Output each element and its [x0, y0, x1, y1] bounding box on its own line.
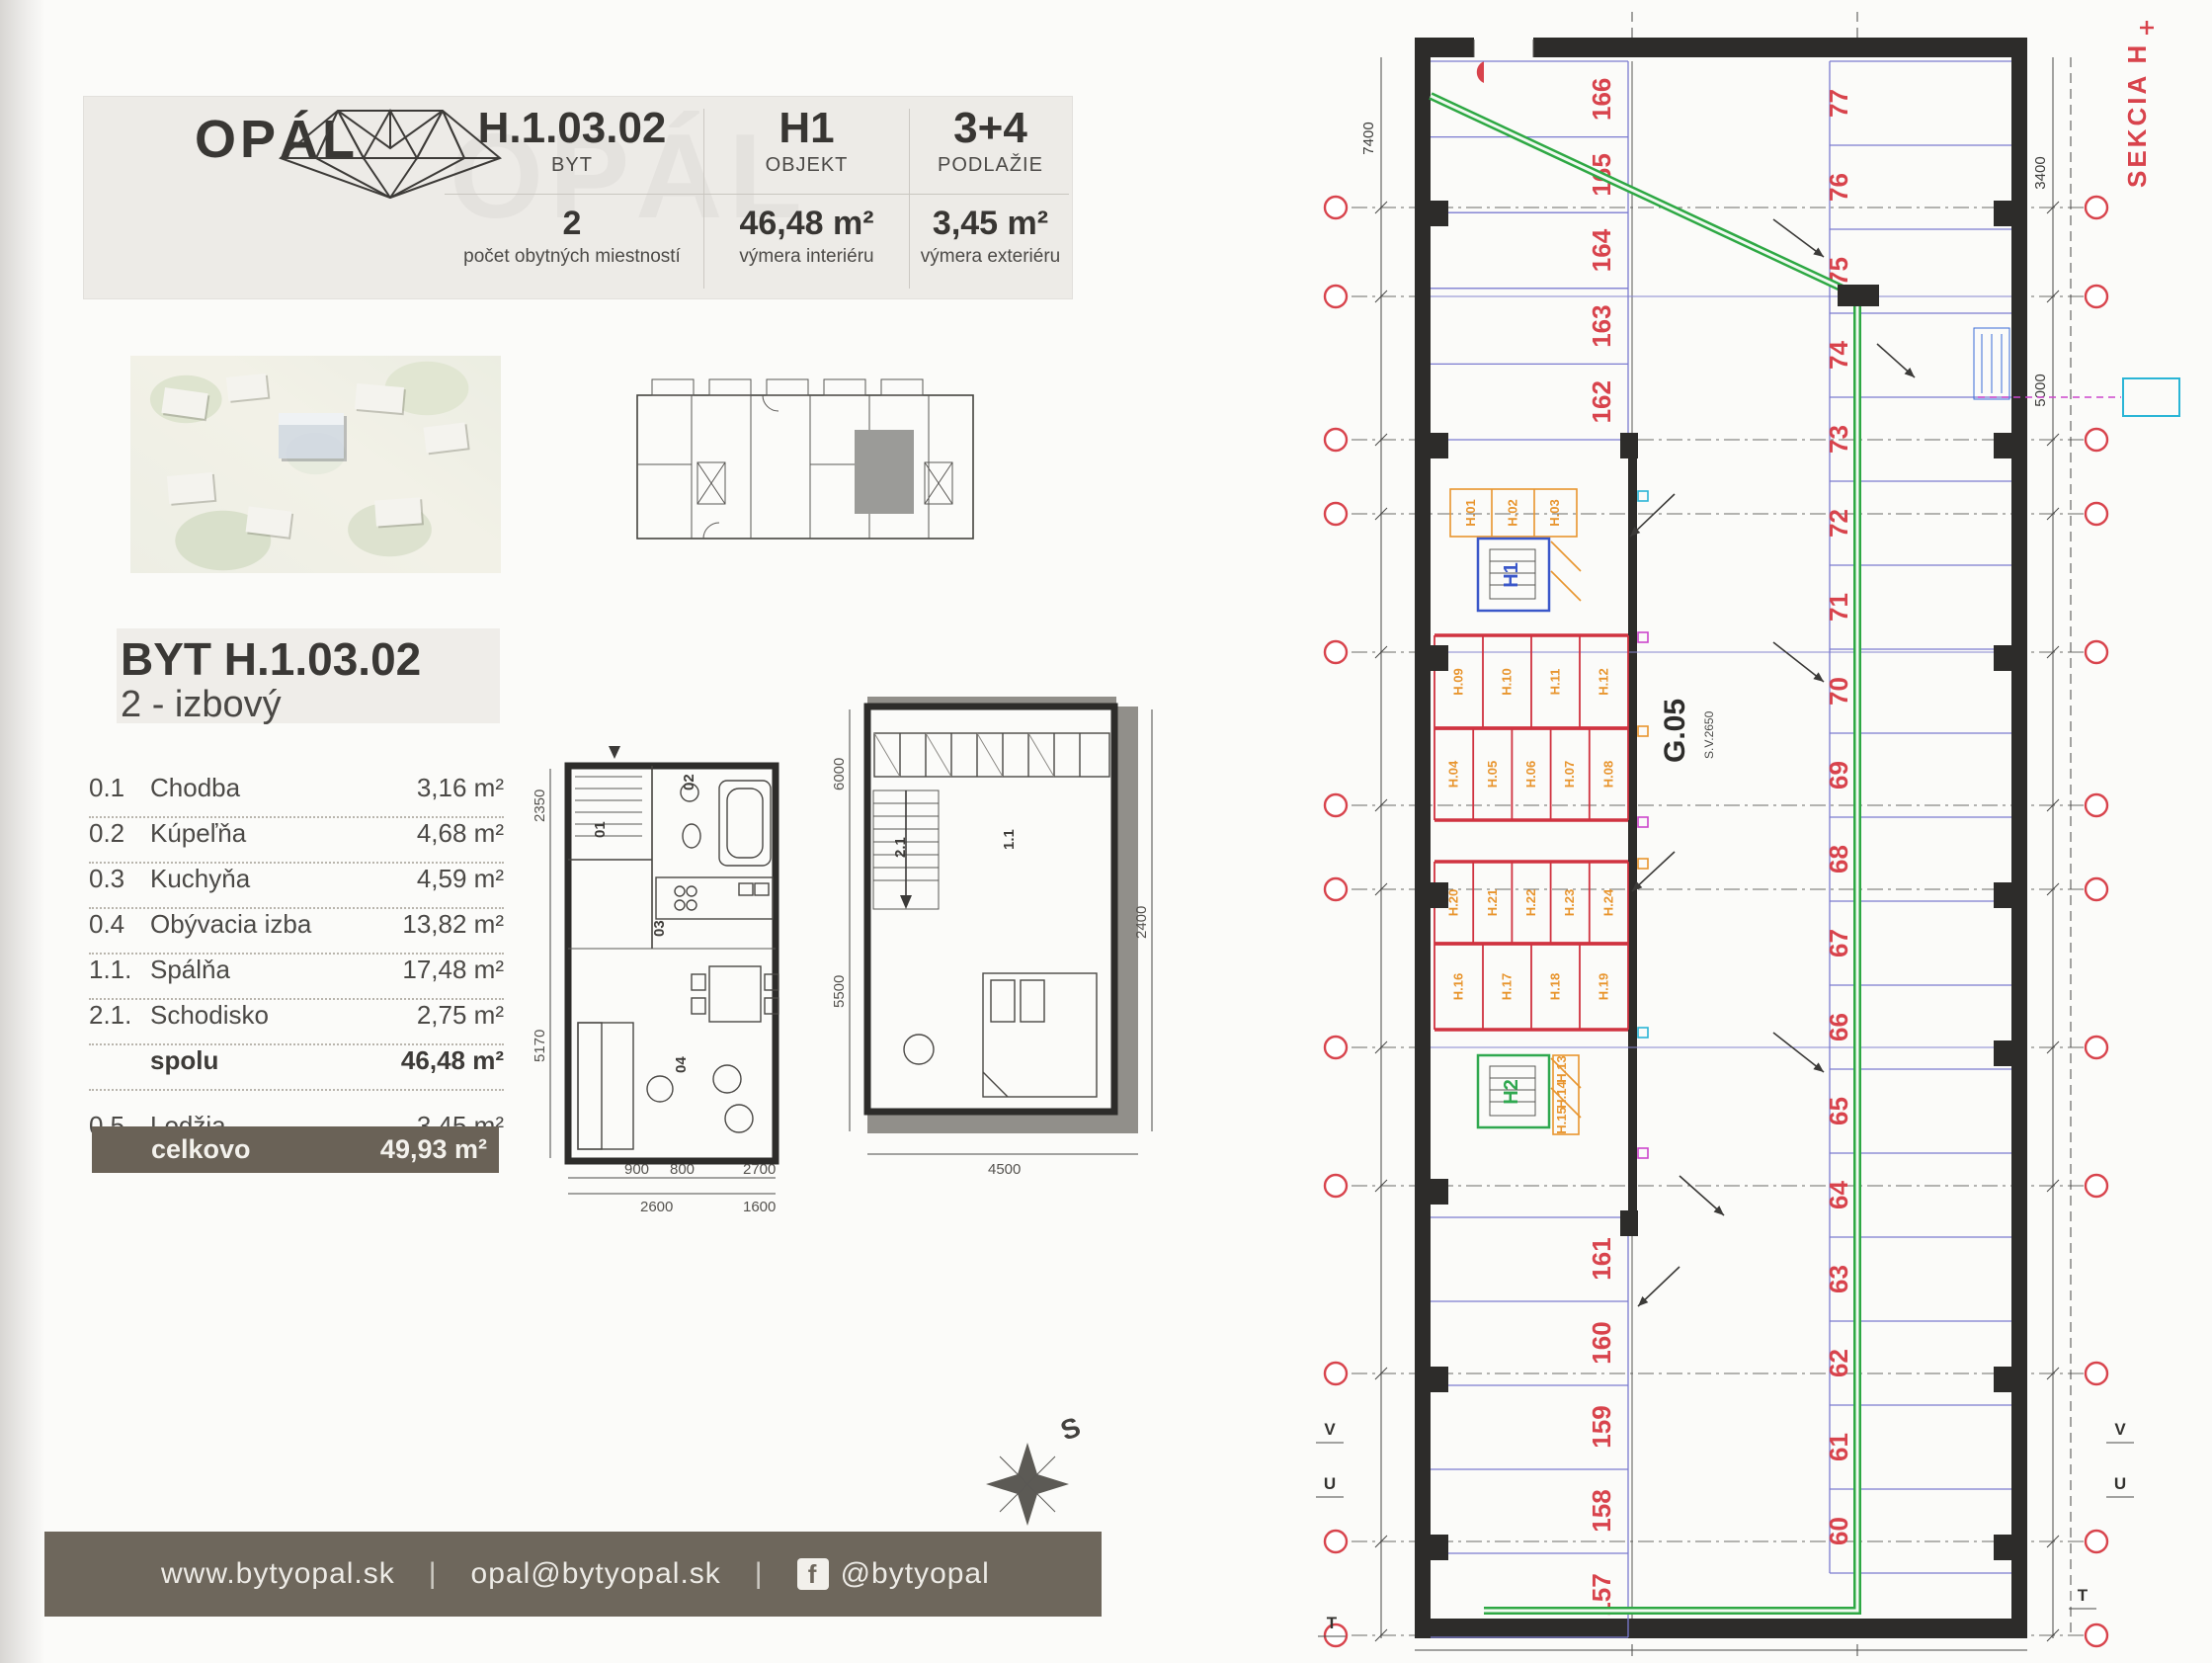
parking-number: 61: [1824, 1433, 1853, 1461]
pillar: [1994, 645, 2011, 671]
section-cut-letter: U: [2114, 1474, 2126, 1493]
pillar: [1431, 645, 1448, 671]
grid-marker-icon: [2086, 794, 2107, 816]
storage-label: H.07: [1562, 761, 1577, 788]
parking-number: 158: [1587, 1489, 1616, 1532]
dimension-chains: 7400 3400 5000: [1360, 57, 2071, 1656]
pillar: [1994, 1535, 2011, 1560]
core-h1: H1: [1478, 539, 1581, 611]
grid-marker-icon: [1325, 1531, 1347, 1552]
parking-number: 77: [1824, 89, 1853, 118]
storage-label: H.10: [1500, 668, 1515, 695]
section-label: SEKCIA H: [2122, 42, 2152, 188]
storage-label: H.12: [1597, 668, 1611, 695]
storage-label: H.19: [1597, 973, 1611, 1000]
parking-number: 72: [1824, 509, 1853, 538]
service-box-icon: [1638, 632, 1648, 642]
storage-label: H.09: [1451, 668, 1466, 695]
parking-number: 161: [1587, 1237, 1616, 1280]
grid-lines-group: [1325, 197, 2107, 1646]
section-title: SEKCIA H: [2122, 21, 2154, 188]
storage-label: H.04: [1446, 760, 1461, 788]
garage-walls: [1415, 12, 2027, 1638]
grid-marker-icon: [1325, 286, 1347, 307]
parking-number: 71: [1824, 593, 1853, 622]
storage-label: H.05: [1485, 761, 1500, 788]
pillar: [1431, 433, 1448, 458]
storage-label: H.21: [1485, 889, 1500, 916]
storage-label: H.18: [1548, 973, 1563, 1000]
storage-label: H.06: [1523, 761, 1538, 788]
grid-marker-icon: [1325, 429, 1347, 451]
storage-label: H.24: [1600, 888, 1615, 916]
pillar: [1994, 1367, 2011, 1392]
dim-label: 5000: [2032, 374, 2049, 406]
pillar: [1994, 882, 2011, 908]
service-box-icon: [1638, 859, 1648, 869]
grid-marker-icon: [2086, 429, 2107, 451]
grid-marker-icon: [2086, 286, 2107, 307]
ramp-line: [1431, 96, 1879, 1611]
parking-number: 65: [1824, 1097, 1853, 1125]
grid-marker-icon: [1325, 641, 1347, 663]
pillar: [1431, 1179, 1448, 1205]
service-box-icon: [1638, 817, 1648, 827]
section-cut-letter: V: [2114, 1420, 2126, 1439]
grid-marker-icon: [2086, 641, 2107, 663]
parking-number: 76: [1824, 173, 1853, 202]
storage-label: H.22: [1523, 889, 1538, 916]
direction-arrow-head: [1813, 248, 1824, 257]
drawing-extras-group: VUVUTT: [1316, 201, 2134, 1636]
parking-number: 73: [1824, 425, 1853, 454]
grid-marker-icon: [2086, 503, 2107, 525]
pillar: [1431, 201, 1448, 226]
grid-marker-icon: [2086, 1624, 2107, 1646]
unit-label-h2: H2: [1501, 1079, 1522, 1105]
parking-number: 159: [1587, 1405, 1616, 1448]
grid-marker-icon: [1325, 503, 1347, 525]
grid-marker-icon: [2086, 878, 2107, 900]
pillar: [1431, 1535, 1448, 1560]
direction-arrow-head: [1813, 1062, 1824, 1072]
direction-arrow-head: [1813, 672, 1824, 682]
parking-number: 74: [1824, 341, 1853, 370]
garage-floor-plan: 7776757473727170696867666564636261601661…: [0, 0, 2212, 1663]
service-box-icon: [1638, 1148, 1648, 1158]
section-cut-letter: T: [2078, 1586, 2089, 1605]
pillar: [1994, 1040, 2011, 1066]
parking-stalls-group: 7776757473727170696867666564636261601661…: [1431, 61, 2011, 1637]
parking-number: 166: [1587, 78, 1616, 121]
unit-label-h1: H1: [1501, 562, 1522, 588]
parking-number: 160: [1587, 1321, 1616, 1364]
storage-label: H.03: [1547, 499, 1562, 526]
parking-number: 163: [1587, 304, 1616, 347]
storage-label: H.23: [1562, 889, 1577, 916]
grid-marker-icon: [2086, 1037, 2107, 1058]
storage-label: H.15: [1554, 1107, 1569, 1133]
parking-number: 66: [1824, 1013, 1853, 1041]
grid-marker-icon: [1325, 878, 1347, 900]
entrance-marker: [1477, 61, 1484, 83]
parking-number: 60: [1824, 1517, 1853, 1545]
parking-number: 69: [1824, 761, 1853, 790]
parking-number: 70: [1824, 677, 1853, 706]
grid-marker-icon: [2086, 1363, 2107, 1384]
parking-number: 67: [1824, 929, 1853, 957]
scanned-brochure-page: OPÁL OPÁL H.1.03.02 BYT H1 OBJEKT 3+4: [0, 0, 2212, 1663]
misc-annotations: [1974, 328, 2179, 416]
grid-marker-icon: [1325, 1037, 1347, 1058]
grid-marker-icon: [2086, 1175, 2107, 1197]
parking-number: 62: [1824, 1349, 1853, 1377]
dim-label: 3400: [2032, 156, 2049, 189]
grid-marker-icon: [2086, 1531, 2107, 1552]
section-cut-letter: T: [1327, 1614, 1338, 1632]
parking-number: 164: [1587, 228, 1616, 272]
storage-label: H.08: [1600, 761, 1615, 788]
storage-label: H.11: [1548, 669, 1563, 696]
area-sublabel: S.V.2650: [1702, 710, 1716, 759]
pillar: [1431, 882, 1448, 908]
section-cut-letter: U: [1324, 1474, 1336, 1493]
grid-marker-icon: [1325, 1363, 1347, 1384]
storage-label: H.16: [1451, 973, 1466, 1000]
pillar: [1994, 433, 2011, 458]
parking-number: 68: [1824, 845, 1853, 873]
dim-label: 7400: [1360, 122, 1377, 154]
service-box-icon: [1638, 726, 1648, 736]
grid-marker-icon: [1325, 1175, 1347, 1197]
service-box-icon: [1638, 491, 1648, 501]
storage-label: H.02: [1506, 499, 1520, 526]
grid-marker-icon: [1325, 794, 1347, 816]
section-cut-letter: V: [1324, 1420, 1336, 1439]
pillar: [1994, 201, 2011, 226]
storage-cells-group: H.09H.10H.11H.12H.04H.05H.06H.07H.08H.20…: [1434, 489, 1628, 1134]
pillar: [1620, 433, 1638, 458]
grid-marker-icon: [1325, 197, 1347, 218]
pillar: [1620, 1210, 1638, 1236]
grid-marker-icon: [2086, 197, 2107, 218]
service-box-icon: [1638, 1028, 1648, 1038]
storage-label: H.17: [1500, 973, 1515, 1000]
parking-number: 64: [1824, 1181, 1853, 1209]
parking-number: 162: [1587, 380, 1616, 423]
storage-label: H.01: [1463, 499, 1478, 526]
pillar: [1431, 1367, 1448, 1392]
area-label-g05: G.05: [1659, 699, 1691, 763]
parking-number: 63: [1824, 1265, 1853, 1293]
